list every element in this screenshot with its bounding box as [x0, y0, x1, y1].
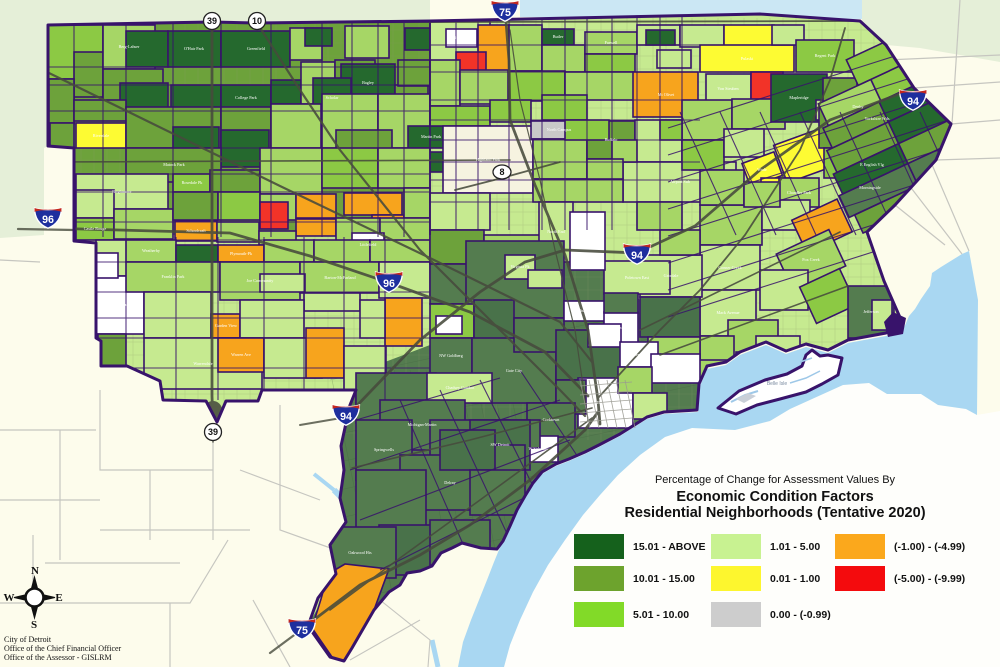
- svg-text:Von Steuben: Von Steuben: [717, 86, 739, 91]
- svg-text:8: 8: [499, 167, 504, 177]
- svg-text:Residential Neighborhoods (Ten: Residential Neighborhoods (Tentative 202…: [624, 505, 925, 521]
- svg-text:Greenfield: Greenfield: [247, 46, 266, 51]
- svg-text:Mt Olivet: Mt Olivet: [658, 92, 675, 97]
- svg-text:Martin Park: Martin Park: [421, 134, 442, 139]
- svg-text:North End: North End: [547, 229, 565, 234]
- svg-text:96: 96: [42, 214, 54, 226]
- svg-text:W Side Ind: W Side Ind: [529, 446, 549, 451]
- svg-text:Percentage of Change for Asses: Percentage of Change for Assessment Valu…: [655, 474, 896, 486]
- svg-text:Warrendale: Warrendale: [193, 361, 212, 366]
- svg-text:Eastern Mkt: Eastern Mkt: [629, 352, 650, 357]
- svg-text:Cultural Ctr: Cultural Ctr: [575, 308, 596, 313]
- svg-text:Chadsey Condon: Chadsey Condon: [446, 385, 476, 390]
- svg-text:Delray: Delray: [444, 480, 456, 485]
- svg-text:S: S: [31, 619, 37, 631]
- svg-text:Airport Sub: Airport Sub: [670, 179, 690, 184]
- svg-text:Belle Isle: Belle Isle: [767, 381, 788, 387]
- svg-text:Chandler Park: Chandler Park: [787, 190, 812, 195]
- svg-text:Schoolcraft: Schoolcraft: [186, 228, 206, 233]
- svg-text:1.01 - 5.00: 1.01 - 5.00: [770, 541, 820, 553]
- svg-text:Rosedale Pk: Rosedale Pk: [182, 180, 204, 185]
- svg-text:Regent Park: Regent Park: [815, 53, 836, 58]
- svg-text:Barton-McFarland: Barton-McFarland: [324, 275, 356, 280]
- svg-text:Buffalo: Buffalo: [605, 137, 618, 142]
- svg-text:North Campus: North Campus: [547, 127, 572, 132]
- svg-text:Conner Creek: Conner Creek: [718, 265, 742, 270]
- svg-text:0.00 - (-0.99): 0.00 - (-0.99): [770, 609, 831, 621]
- svg-text:Office of the Assessor - GISLR: Office of the Assessor - GISLRM: [4, 653, 112, 662]
- svg-text:Castle Rouge: Castle Rouge: [84, 226, 107, 231]
- svg-text:94: 94: [340, 411, 352, 423]
- svg-text:O'Hair Park: O'Hair Park: [184, 46, 205, 51]
- svg-text:94: 94: [907, 96, 919, 108]
- svg-text:(-1.00) - (-4.99): (-1.00) - (-4.99): [894, 541, 965, 553]
- svg-text:Michigan-Martin: Michigan-Martin: [408, 422, 438, 427]
- svg-text:Farwell: Farwell: [605, 40, 619, 45]
- svg-text:Virginia Pk: Virginia Pk: [510, 264, 530, 269]
- svg-text:Riverdale: Riverdale: [93, 133, 109, 138]
- svg-text:75: 75: [296, 625, 308, 637]
- svg-text:Medical Ctr: Medical Ctr: [594, 333, 615, 338]
- svg-text:Office of the Chief Financial: Office of the Chief Financial Officer: [4, 644, 122, 653]
- svg-text:Morningside: Morningside: [859, 185, 881, 190]
- svg-text:Joe Community: Joe Community: [247, 278, 275, 283]
- svg-text:Franklin Park: Franklin Park: [162, 274, 186, 279]
- svg-text:Oakwood Hts: Oakwood Hts: [348, 550, 372, 555]
- svg-text:Foren Park: Foren Park: [612, 325, 631, 330]
- svg-text:15.01 - ABOVE: 15.01 - ABOVE: [633, 541, 706, 553]
- svg-text:W: W: [4, 592, 15, 604]
- svg-text:Weatherby: Weatherby: [142, 248, 161, 253]
- svg-text:Littlefield: Littlefield: [360, 242, 378, 247]
- svg-text:10.01 - 15.00: 10.01 - 15.00: [633, 573, 695, 585]
- svg-text:Plymouth-Pk: Plymouth-Pk: [230, 251, 253, 256]
- svg-text:Butler: Butler: [553, 34, 564, 39]
- svg-text:39: 39: [208, 427, 218, 437]
- svg-text:Brightmoor: Brightmoor: [112, 189, 132, 194]
- svg-text:Gate City: Gate City: [506, 368, 523, 373]
- svg-text:Berg-Lahser: Berg-Lahser: [119, 44, 140, 49]
- svg-text:E: E: [55, 592, 62, 604]
- svg-text:Ellwood Park: Ellwood Park: [665, 366, 689, 371]
- svg-text:Scholar: Scholar: [326, 95, 339, 100]
- svg-text:94: 94: [631, 250, 643, 262]
- svg-text:N: N: [31, 565, 39, 577]
- svg-text:NW Goldberg: NW Goldberg: [439, 353, 464, 358]
- svg-text:Springwells: Springwells: [374, 447, 394, 452]
- svg-text:College Park: College Park: [235, 95, 258, 100]
- svg-text:Jefferson: Jefferson: [863, 309, 879, 314]
- svg-text:State Fair: State Fair: [454, 35, 471, 40]
- svg-text:Matock Park: Matock Park: [163, 162, 185, 167]
- svg-text:City of Detroit: City of Detroit: [4, 635, 52, 644]
- svg-text:96: 96: [383, 278, 395, 290]
- svg-text:5.01 - 10.00: 5.01 - 10.00: [633, 609, 689, 621]
- svg-text:Corktown: Corktown: [543, 417, 561, 422]
- svg-text:Bagley: Bagley: [362, 80, 375, 85]
- svg-text:Warren Ave: Warren Ave: [231, 352, 251, 357]
- svg-text:Rouge Park: Rouge Park: [110, 302, 131, 307]
- svg-text:10: 10: [252, 16, 262, 26]
- svg-text:Wade: Wade: [757, 167, 767, 172]
- svg-text:Economic Condition Factors: Economic Condition Factors: [676, 489, 873, 505]
- svg-text:39: 39: [207, 16, 217, 26]
- svg-text:Fox Creek: Fox Creek: [802, 257, 820, 262]
- svg-text:(-5.00) - (-9.99): (-5.00) - (-9.99): [894, 573, 965, 585]
- svg-text:Pulaski: Pulaski: [741, 56, 754, 61]
- svg-text:SW Detroit: SW Detroit: [490, 442, 510, 447]
- svg-text:75: 75: [499, 7, 511, 19]
- svg-text:Mapleridge: Mapleridge: [789, 95, 808, 100]
- svg-text:Mack Avenue: Mack Avenue: [716, 310, 739, 315]
- svg-text:Yorkshire Wds: Yorkshire Wds: [865, 116, 890, 121]
- svg-text:Grixdale: Grixdale: [664, 273, 679, 278]
- svg-text:Poletown East: Poletown East: [625, 275, 650, 280]
- svg-text:Garden View: Garden View: [215, 323, 237, 328]
- svg-text:0.01 - 1.00: 0.01 - 1.00: [770, 573, 820, 585]
- svg-text:Denby: Denby: [852, 104, 864, 109]
- svg-text:Highland Park: Highland Park: [476, 157, 501, 162]
- svg-text:E English Vlg: E English Vlg: [860, 162, 885, 167]
